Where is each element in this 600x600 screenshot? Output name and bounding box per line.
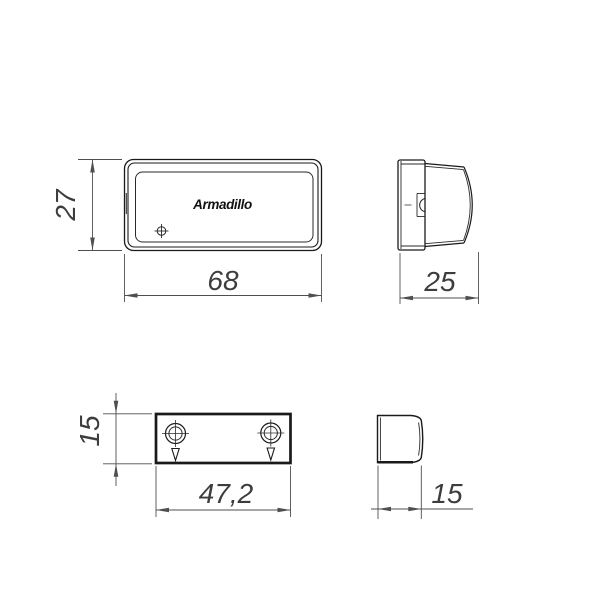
body-depth-value: 25 [423, 266, 456, 297]
technical-drawing: Armadillo 68 27 [0, 0, 600, 600]
plate-width-value: 47,2 [199, 478, 254, 509]
body-height-value: 27 [50, 188, 81, 222]
drawing-canvas: Armadillo 68 27 [0, 0, 600, 600]
plate-depth-value: 15 [431, 478, 463, 509]
plate-height-value: 15 [74, 415, 105, 447]
canvas-background [0, 0, 600, 600]
brand-logo-text: Armadillo [192, 197, 252, 212]
body-width-value: 68 [207, 265, 239, 296]
